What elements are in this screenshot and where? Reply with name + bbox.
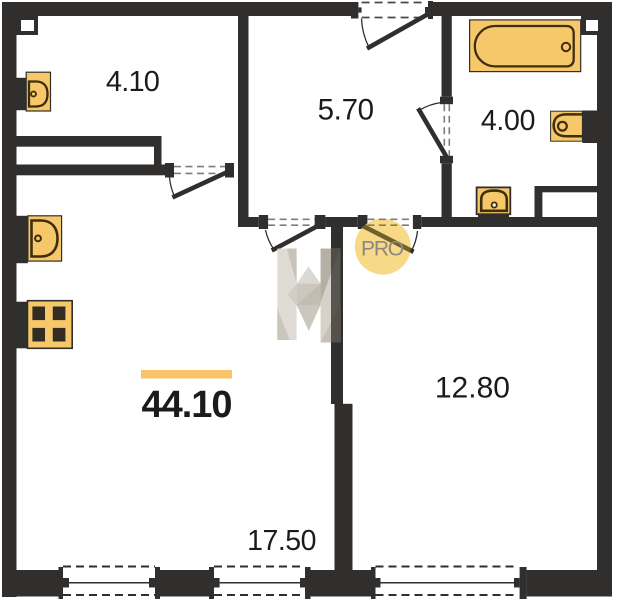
svg-text:44.10: 44.10 xyxy=(141,384,231,426)
svg-text:PRO: PRO xyxy=(361,238,404,261)
svg-text:4.10: 4.10 xyxy=(106,66,159,98)
svg-text:12.80: 12.80 xyxy=(435,371,510,404)
svg-text:4.00: 4.00 xyxy=(481,105,535,137)
svg-text:17.50: 17.50 xyxy=(247,525,316,557)
svg-text:5.70: 5.70 xyxy=(318,93,374,126)
